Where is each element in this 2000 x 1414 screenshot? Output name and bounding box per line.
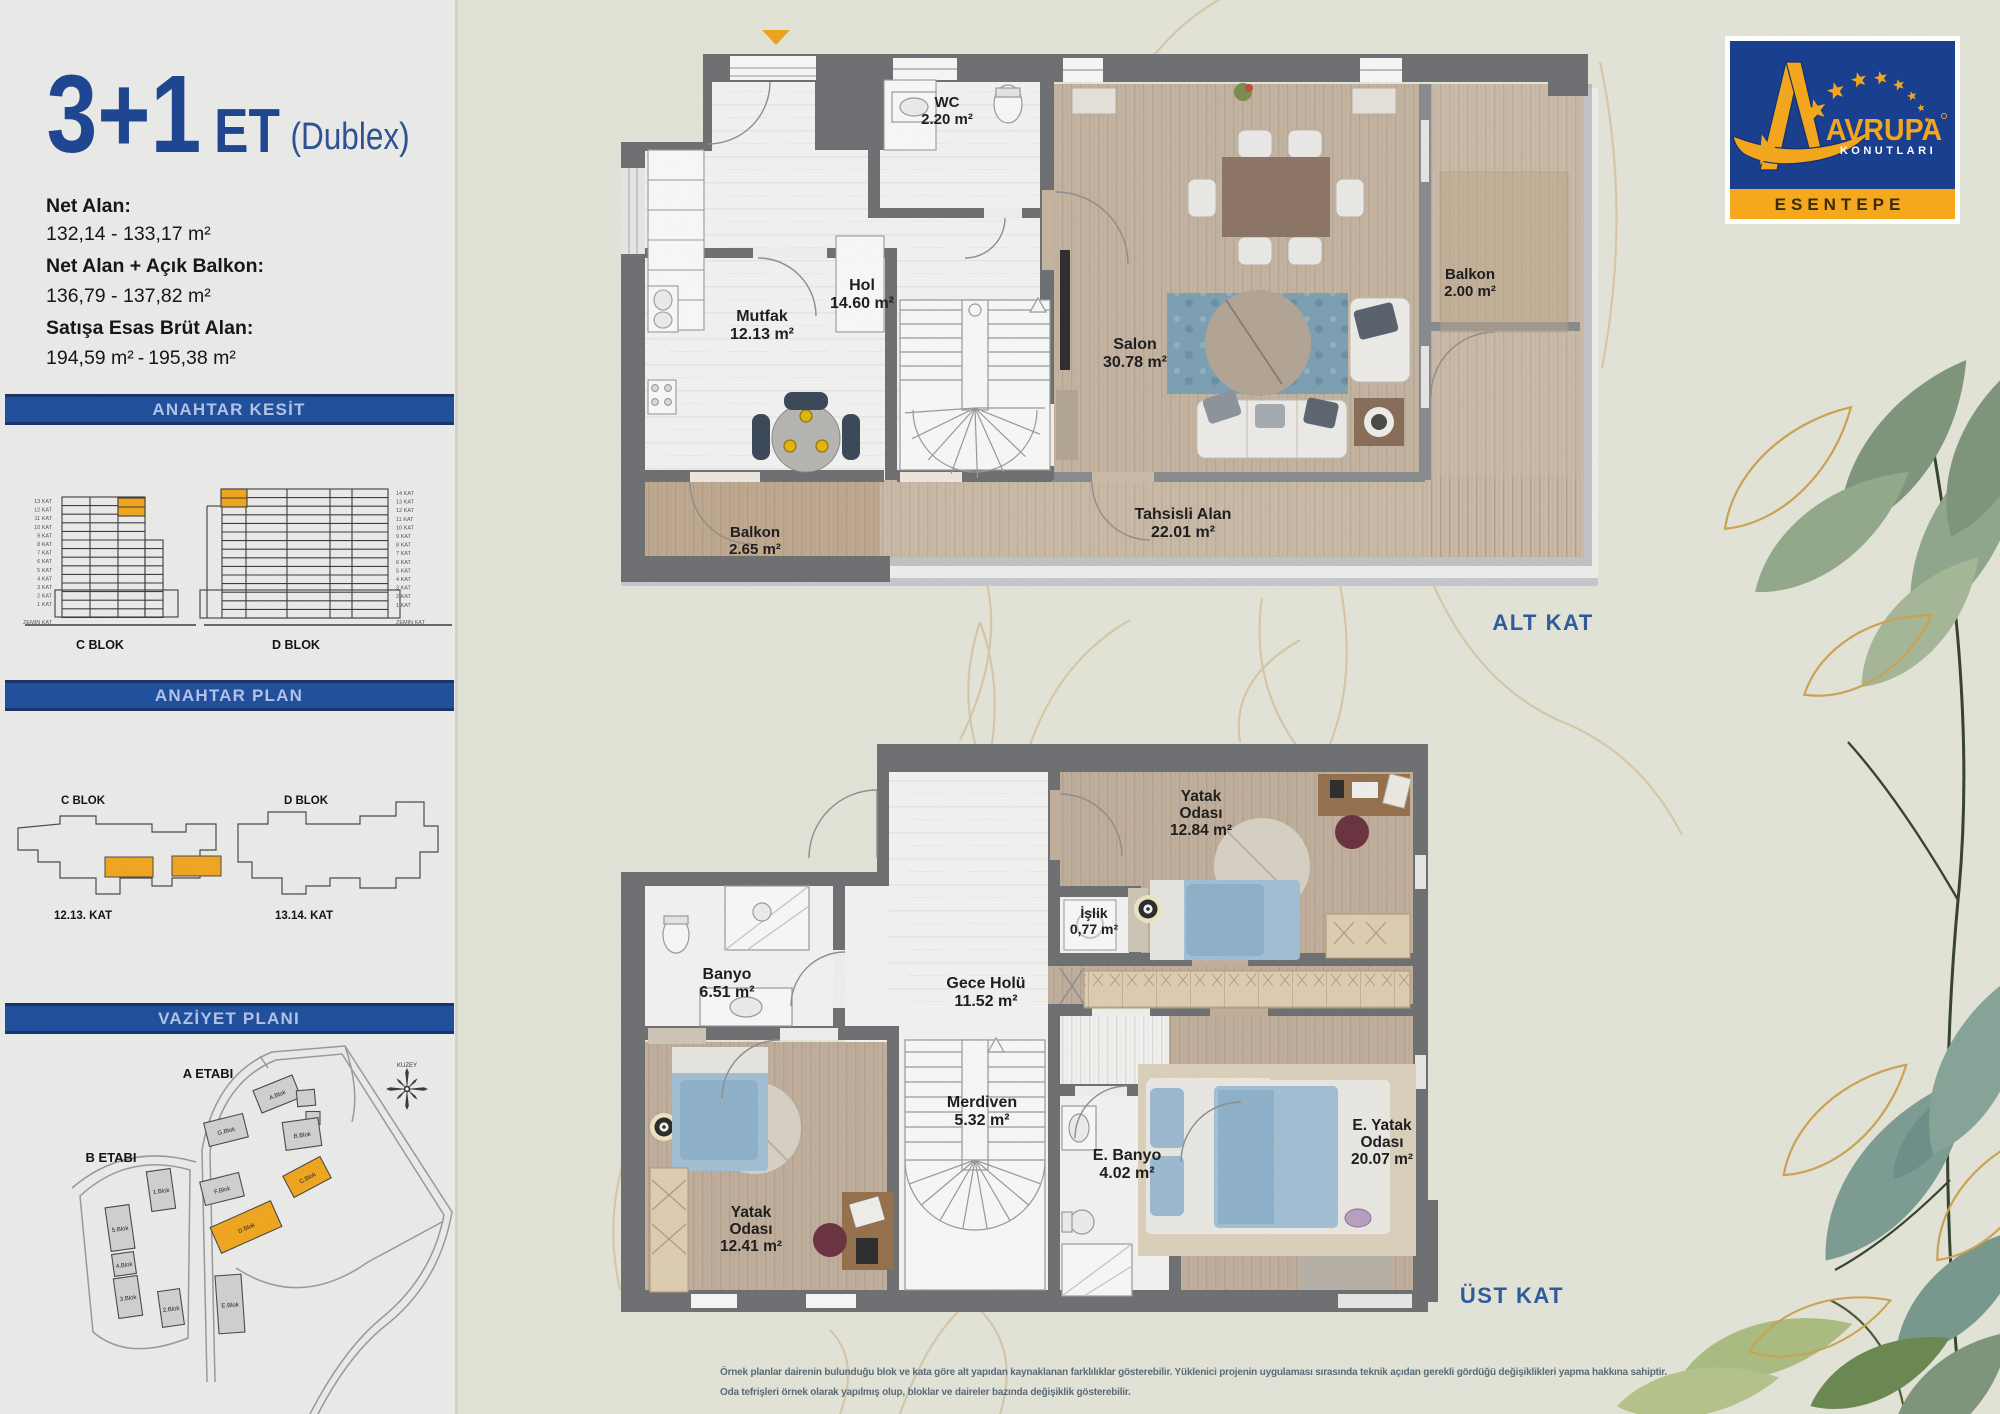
svg-text:Örnek planlar dairenin bulundu: Örnek planlar dairenin bulunduğu blok ve… (720, 1365, 1667, 1378)
svg-text:AVRUPA: AVRUPA (1826, 113, 1942, 147)
svg-text:ESENTEPE: ESENTEPE (1775, 195, 1906, 214)
svg-text:Oda tefrişleri örnek olarak ya: Oda tefrişleri örnek olarak yapılmış olu… (720, 1387, 1131, 1398)
svg-text:KONUTLARI: KONUTLARI (1840, 145, 1936, 157)
